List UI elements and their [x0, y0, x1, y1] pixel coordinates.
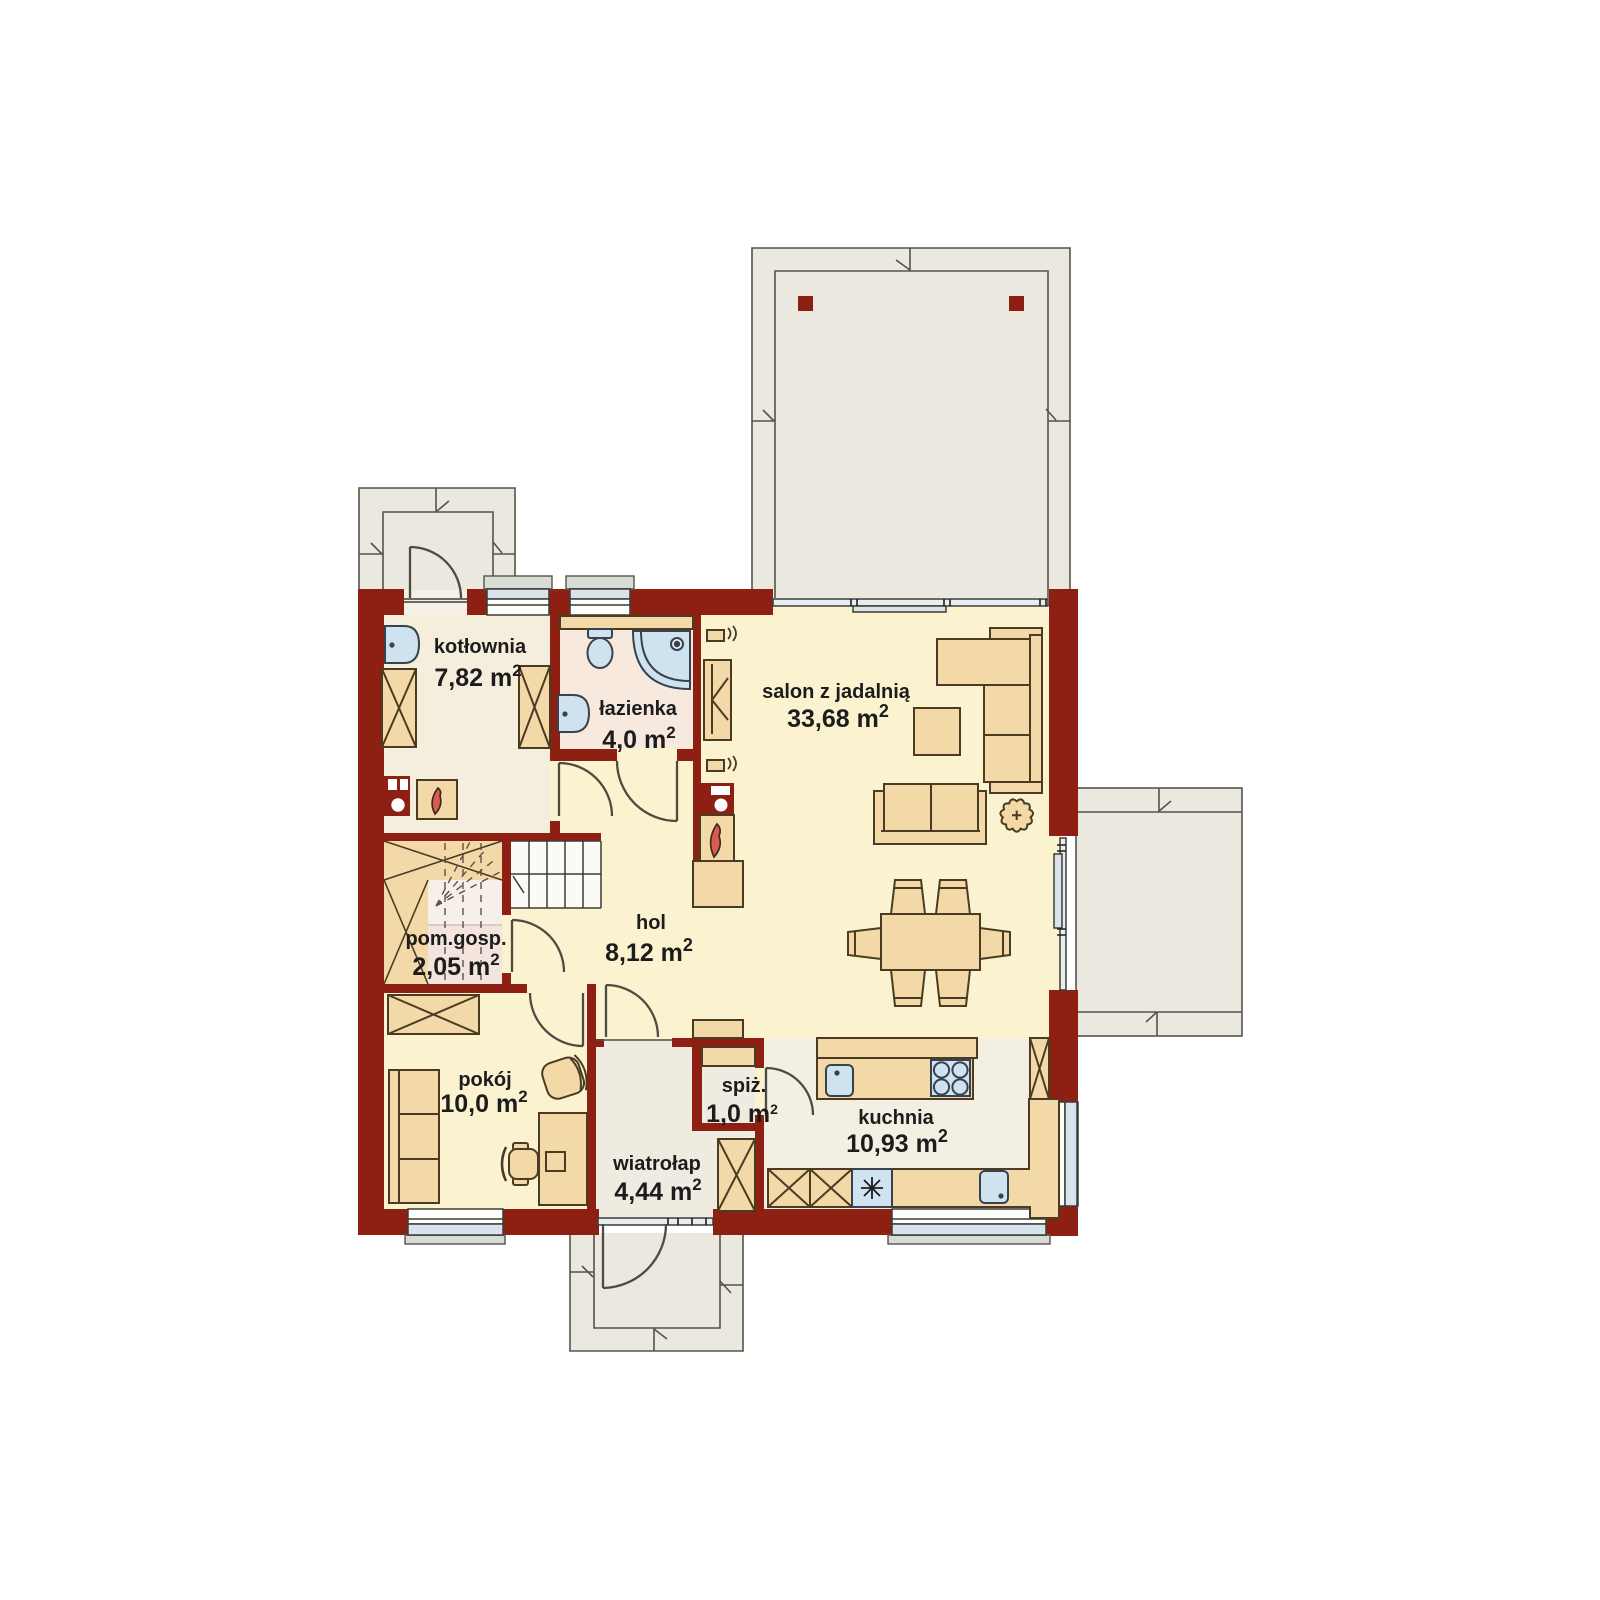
svg-text:4,0 m2: 4,0 m2 — [602, 723, 675, 754]
svg-text:wiatrołap: wiatrołap — [612, 1153, 701, 1175]
svg-text:1,0 m2: 1,0 m2 — [706, 1100, 778, 1128]
svg-text:salon z jadalnią: salon z jadalnią — [762, 681, 911, 703]
svg-text:łazienka: łazienka — [599, 698, 678, 720]
svg-text:pokój: pokój — [458, 1069, 511, 1091]
svg-text:7,82 m2: 7,82 m2 — [434, 661, 521, 692]
svg-text:spiż.: spiż. — [722, 1075, 766, 1097]
svg-text:8,12 m2: 8,12 m2 — [605, 935, 693, 967]
svg-text:kuchnia: kuchnia — [858, 1107, 934, 1129]
svg-text:4,44 m2: 4,44 m2 — [614, 1175, 701, 1206]
svg-text:10,93 m2: 10,93 m2 — [846, 1126, 948, 1158]
svg-text:33,68 m2: 33,68 m2 — [787, 701, 889, 733]
svg-text:pom.gosp.: pom.gosp. — [405, 928, 506, 950]
svg-text:10,0 m2: 10,0 m2 — [440, 1087, 527, 1118]
svg-text:hol: hol — [636, 912, 666, 934]
svg-text:2,05 m2: 2,05 m2 — [412, 950, 499, 981]
svg-text:kotłownia: kotłownia — [434, 636, 527, 658]
